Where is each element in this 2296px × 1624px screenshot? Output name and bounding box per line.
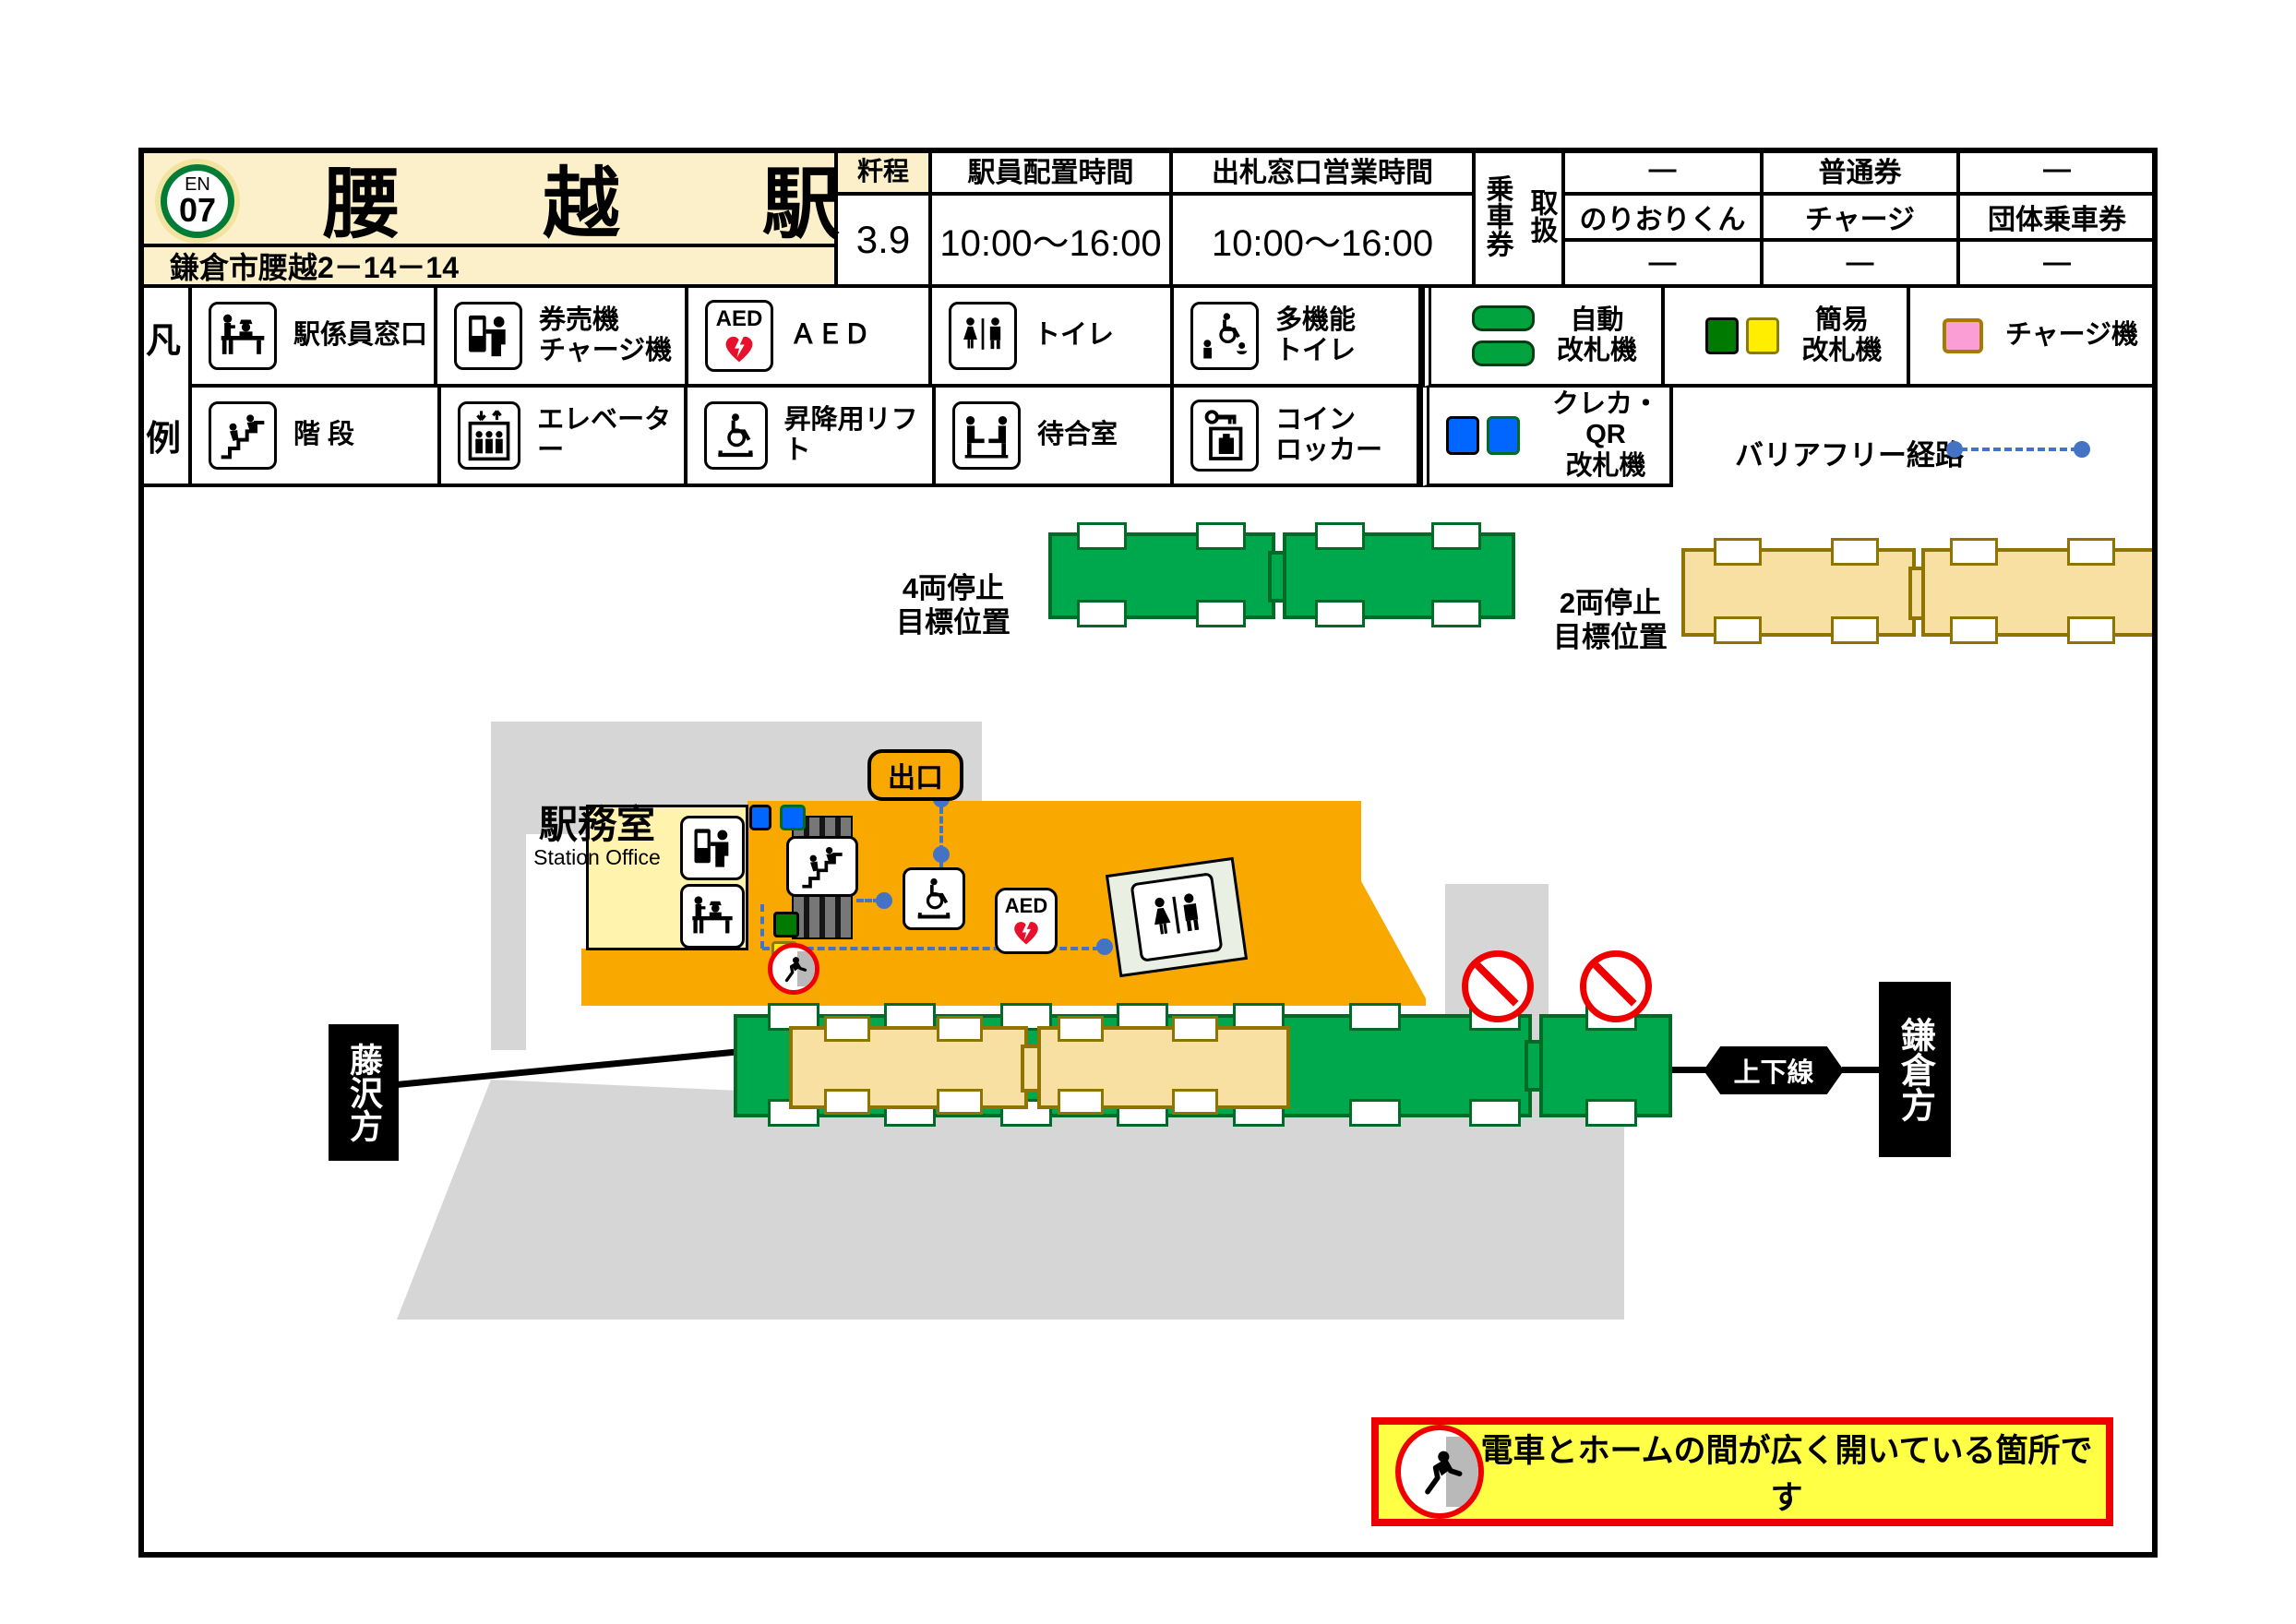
ticket-cell: — (1960, 148, 2158, 196)
map-wheelchair-lift-icon (903, 867, 965, 930)
barrier-free-route-dot (933, 846, 950, 863)
legend-item-attendant-window: 駅係員窓口 (192, 288, 437, 388)
legend-item-auto-gate: 自動 改札機 (1422, 288, 1665, 388)
auto-gate-icon (1472, 305, 1535, 366)
legend-item-simple-gate: 簡易 改札機 (1665, 288, 1910, 388)
map-stairs-icon (786, 836, 858, 897)
ticket-cell: のりおりくん (1565, 196, 1764, 242)
station-footprint (491, 722, 526, 1050)
map-ticket-machine-icon (680, 816, 745, 880)
station-name-cell: EN 07 腰 越 駅 (138, 148, 838, 247)
gap-warning-banner: 電車とホームの間が広く開いている箇所です (1371, 1417, 2113, 1526)
creditcard-qr-gate-icon (1446, 416, 1520, 455)
legend-title: 凡 例 (138, 288, 192, 487)
map-creditcard-qr-gate (780, 805, 806, 830)
barrier-free-route-dot (1946, 441, 1963, 458)
map-toilet-building (1106, 857, 1248, 977)
waiting-room-icon (952, 401, 1021, 470)
wheelchair-lift-icon (704, 401, 768, 470)
coin-locker-icon (1190, 400, 1259, 472)
staff-hours-value: 10:00〜16:00 (932, 196, 1173, 288)
ticket-cell: — (1565, 242, 1764, 288)
legend-item-coin-locker: コイン ロッカー (1174, 388, 1420, 487)
toilet-icon (949, 302, 1017, 370)
no-entry-icon (1580, 950, 1652, 1022)
aed-icon: AED (705, 300, 773, 372)
gap-warning-icon (768, 943, 819, 995)
ticket-cell: — (1960, 242, 2158, 288)
ticket-cell: 団体乗車券 (1960, 196, 2158, 242)
legend-item-ticket-machine: 券売機 チャージ機 (437, 288, 688, 388)
barrier-free-route-dot (876, 892, 892, 909)
station-address-cell: 鎌倉市腰越2－14－14 (138, 247, 838, 288)
two-car-stop-label: 2両停止 目標位置 (1536, 552, 1685, 655)
station-attendant-icon (209, 302, 277, 370)
legend-item-accessible-toilet: 多機能 トイレ (1174, 288, 1422, 388)
gap-warning-text: 電車とホームの間が広く開いている箇所です (1467, 1425, 2106, 1519)
ticket-cell: 普通券 (1764, 148, 1960, 196)
mileage-label-cell: 粁程 (838, 148, 932, 196)
ticket-machine-icon (454, 302, 522, 370)
legend-item-creditcard-qr-gate: クレカ・QR 改札機 (1420, 388, 1673, 487)
legend-item-elevator: エレベーター (441, 388, 688, 487)
fujisawa-connector-line (397, 1049, 737, 1088)
ticket-cell: — (1764, 242, 1960, 288)
station-address: 鎌倉市腰越2－14－14 (170, 245, 459, 287)
kamakura-connector-line (1842, 1067, 1881, 1073)
simple-gate-icon (1705, 317, 1779, 354)
gap-warning-icon (1395, 1425, 1484, 1519)
legend-item-stairs: 階 段 (192, 388, 441, 487)
barrier-free-route-line (1960, 448, 2078, 451)
station-number-badge: EN 07 (155, 159, 240, 244)
map-simple-gate-green (773, 912, 799, 937)
ticket-window-header: 出札窓口営業時間 (1173, 148, 1476, 196)
barrier-free-label: バリアフリー経路 (1735, 432, 1964, 473)
map-creditcard-qr-gate (749, 805, 771, 830)
map-aed-icon: AED (995, 888, 1058, 954)
station-map-poster: EN 07 腰 越 駅 鎌倉市腰越2－14－14 粁程 3.9 駅員配置時間 1… (0, 0, 2296, 1624)
legend-item-lift: 昇降用リフト (688, 388, 936, 487)
elevator-icon (458, 401, 520, 470)
mileage-value-cell: 3.9 (838, 196, 932, 288)
no-entry-icon (1462, 950, 1534, 1022)
station-office-title: 駅務室 Station Office (509, 805, 685, 870)
map-attendant-window-icon (680, 884, 745, 949)
map-toilet-icon (1130, 872, 1223, 962)
accessible-toilet-icon (1190, 302, 1259, 370)
legend-item-charge-machine: チャージ機 (1910, 288, 2158, 388)
barrier-free-route-dot (2074, 441, 2090, 458)
station-name: 腰 越 駅 (323, 155, 840, 240)
four-car-stop-label: 4両停止 目標位置 (879, 537, 1028, 640)
legend-item-toilet: トイレ (932, 288, 1174, 388)
barrier-free-route (760, 904, 764, 949)
kamakura-direction-box: 鎌倉方 (1879, 982, 1951, 1157)
fujisawa-direction-box: 藤沢方 (329, 1024, 399, 1161)
staff-hours-header: 駅員配置時間 (932, 148, 1173, 196)
ticket-handling-label: 乗車券 取扱 (1476, 148, 1565, 288)
updown-line-badge: 上下線 (1704, 1046, 1844, 1094)
legend-item-aed: AED ＡＥＤ (688, 288, 932, 388)
stairs-icon (209, 401, 277, 470)
barrier-free-route-dot (1096, 938, 1113, 955)
ticket-cell: チャージ (1764, 196, 1960, 242)
charge-machine-icon (1943, 318, 1983, 353)
ticket-window-value: 10:00〜16:00 (1173, 196, 1476, 288)
legend-item-waiting-room: 待合室 (936, 388, 1174, 487)
exit-label: 出口 (867, 749, 963, 801)
ticket-cell: — (1565, 148, 1764, 196)
badge-number: 07 (179, 194, 216, 227)
